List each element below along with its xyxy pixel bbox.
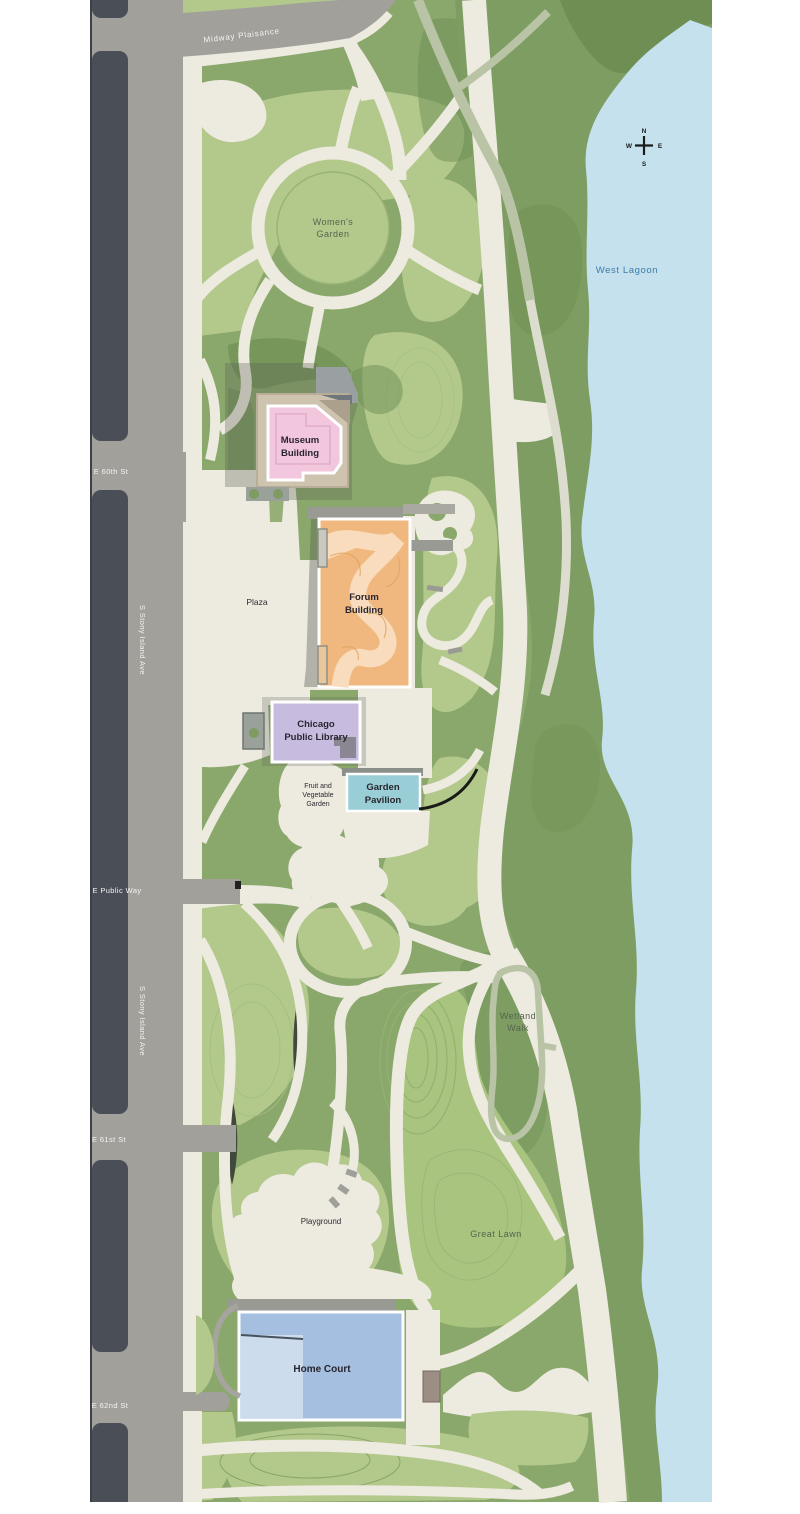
svg-text:S Stony Island Ave: S Stony Island Ave: [138, 605, 147, 675]
svg-text:Playground: Playground: [301, 1217, 341, 1226]
svg-text:Public Library: Public Library: [284, 732, 348, 743]
svg-text:Garden: Garden: [306, 801, 329, 808]
svg-text:Vegetable: Vegetable: [302, 792, 333, 799]
svg-text:Museum: Museum: [281, 435, 320, 446]
svg-text:E Public Way: E Public Way: [92, 886, 141, 895]
svg-text:Chicago: Chicago: [297, 719, 335, 730]
svg-text:W: W: [626, 143, 633, 150]
svg-text:Pavilion: Pavilion: [365, 795, 402, 806]
svg-text:E 61st St: E 61st St: [92, 1135, 127, 1144]
svg-text:Garden: Garden: [316, 229, 349, 239]
svg-text:S Stony Island Ave: S Stony Island Ave: [138, 986, 147, 1056]
svg-text:Home Court: Home Court: [293, 1364, 351, 1375]
svg-text:Women's: Women's: [313, 217, 354, 227]
svg-text:Garden: Garden: [366, 782, 399, 793]
svg-text:N: N: [642, 128, 647, 135]
svg-text:Forum: Forum: [349, 592, 379, 603]
svg-text:Walk: Walk: [507, 1023, 529, 1033]
svg-text:Building: Building: [281, 448, 319, 459]
svg-text:E 62nd St: E 62nd St: [92, 1401, 129, 1410]
svg-text:Wetland: Wetland: [500, 1011, 536, 1021]
svg-text:Great Lawn: Great Lawn: [470, 1229, 522, 1239]
svg-text:E: E: [658, 143, 663, 150]
svg-text:Building: Building: [345, 605, 383, 616]
svg-text:Plaza: Plaza: [246, 597, 268, 607]
svg-text:S: S: [642, 161, 647, 168]
svg-text:E 60th St: E 60th St: [94, 467, 129, 476]
svg-text:Fruit and: Fruit and: [304, 783, 332, 790]
svg-text:West Lagoon: West Lagoon: [596, 265, 658, 276]
